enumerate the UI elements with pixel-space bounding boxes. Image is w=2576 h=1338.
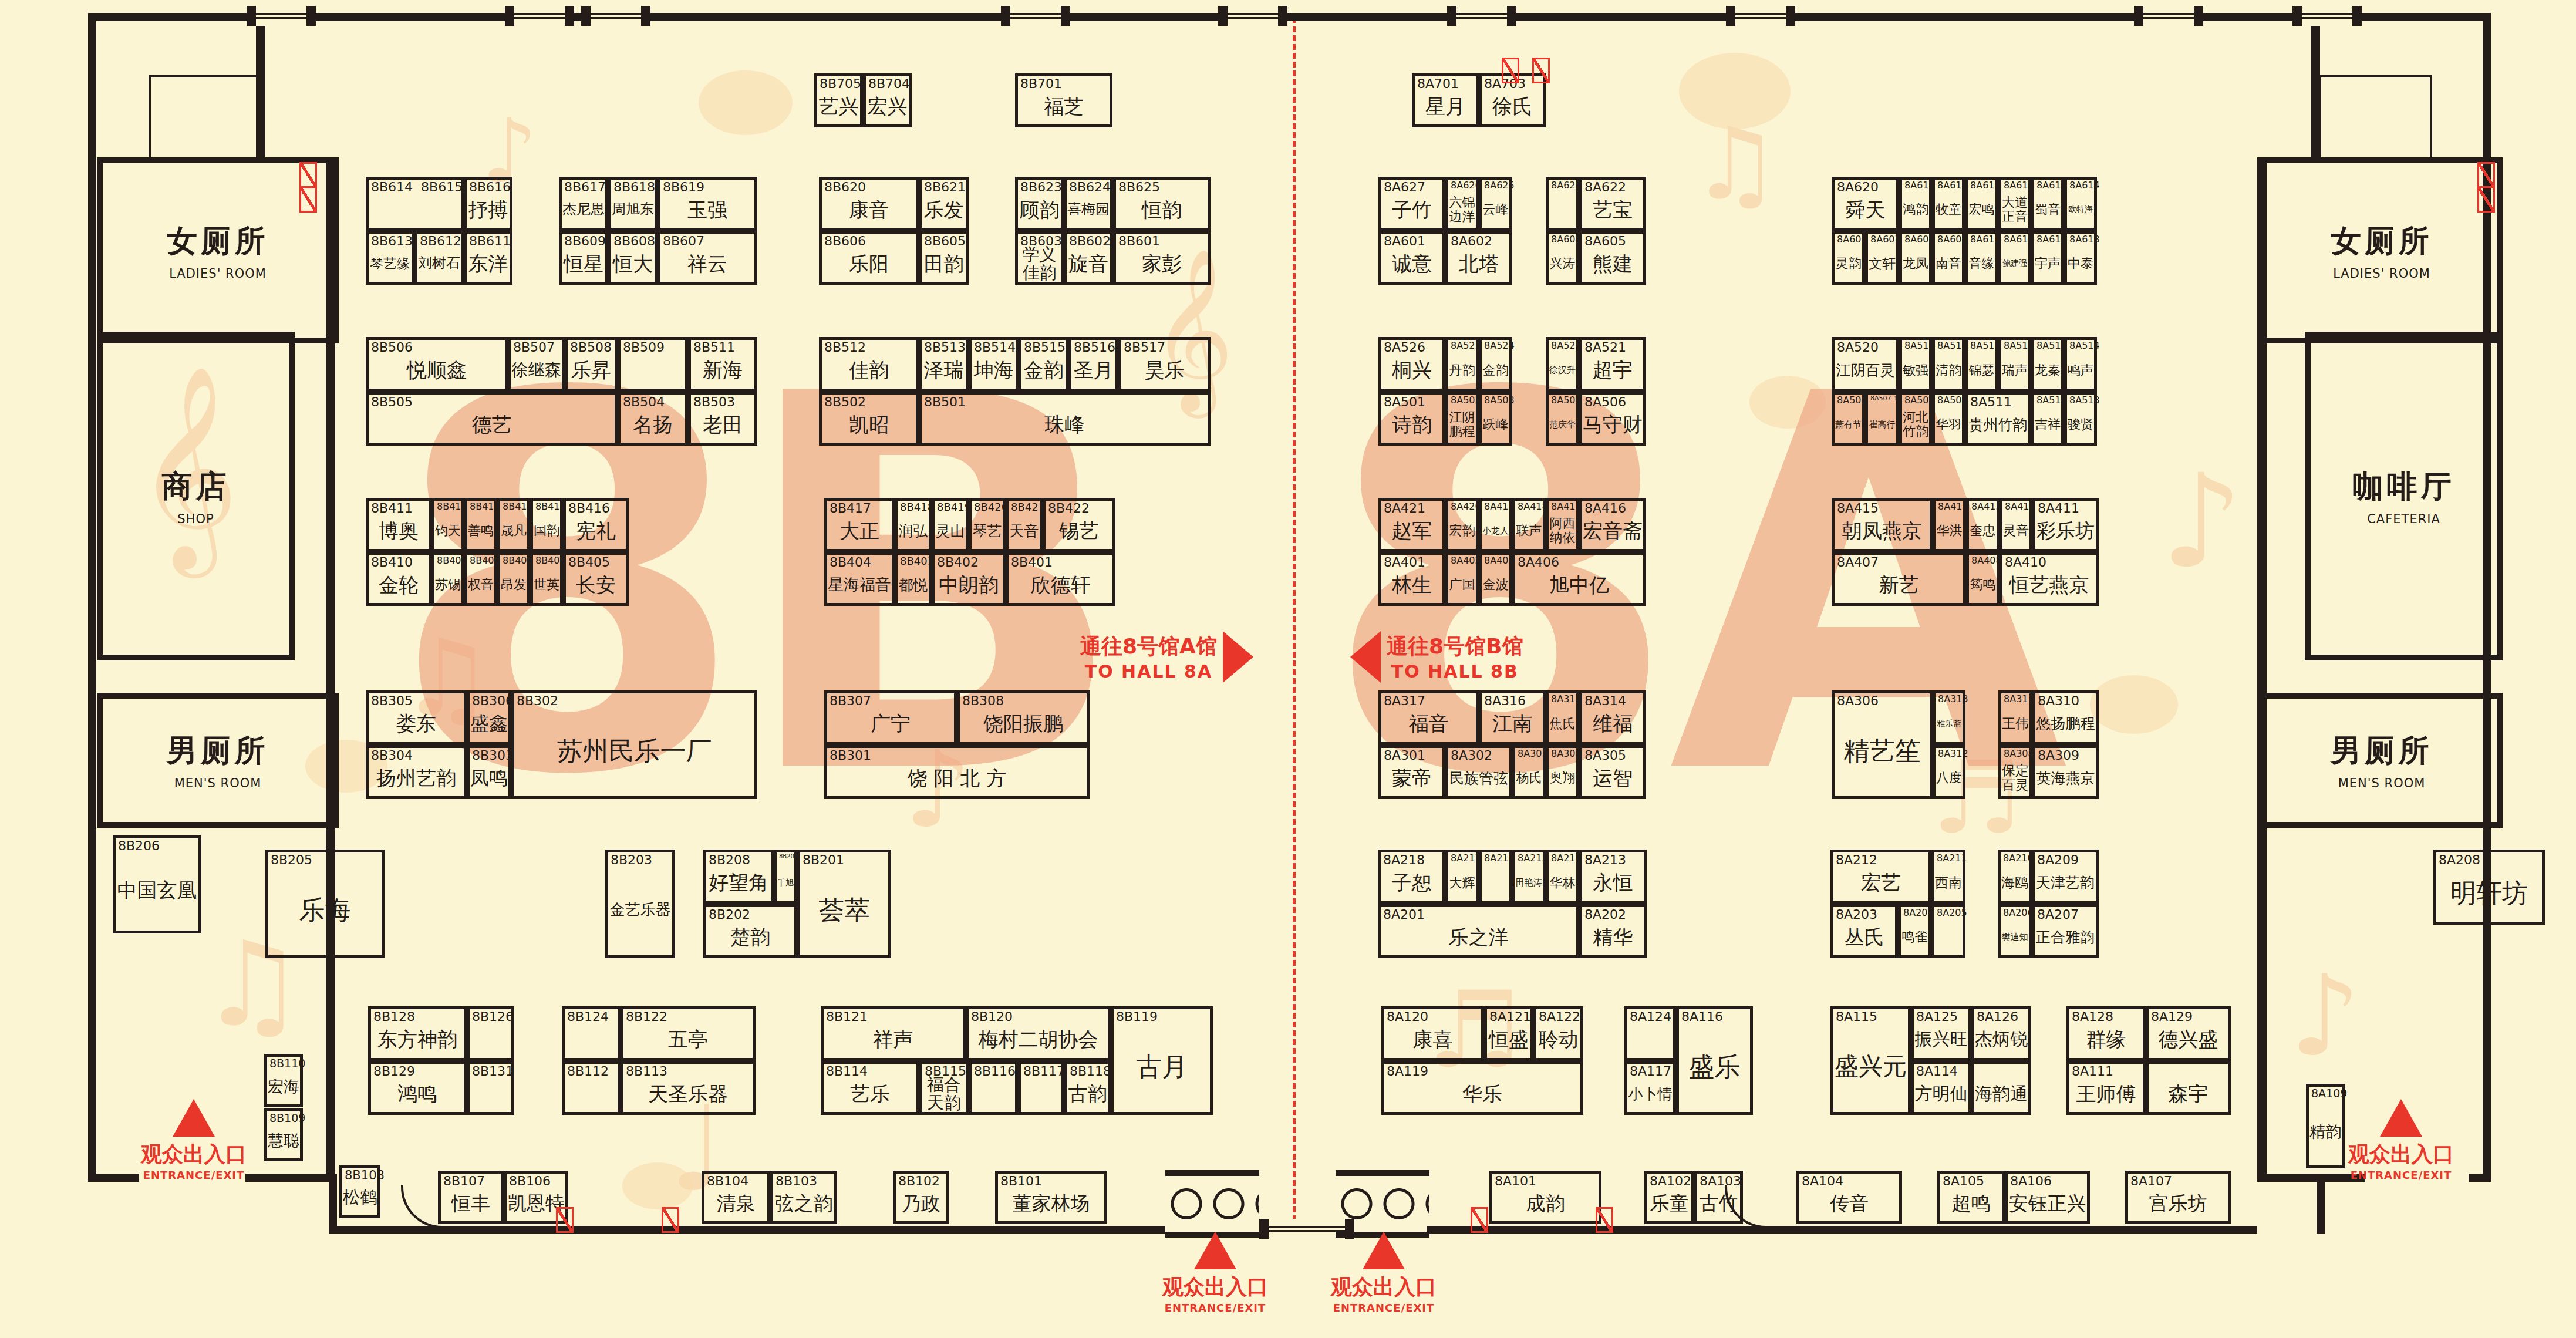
booth-8B305: 8B305娄东 — [366, 690, 467, 745]
booth-8B413: 8B413善鸣 — [464, 498, 497, 552]
booth-id: 8B603 — [1020, 234, 1062, 248]
booth-id: 8B507 — [513, 341, 555, 355]
booth-id: 8B409 — [437, 555, 467, 566]
booth-8B112: 8B112 — [562, 1061, 621, 1115]
booth-name: 苏州民乐一厂 — [557, 725, 712, 765]
entrance-label-cn: 观众出入口 — [1316, 1273, 1451, 1302]
room-label: 商店 — [162, 466, 230, 507]
booth-id: 8B625 — [1118, 180, 1160, 194]
booth-name: 蜀音 — [2035, 191, 2061, 217]
booth-id: 8A419 — [1484, 501, 1515, 512]
room-label: 男厕所 — [167, 730, 269, 771]
room-label-en: LADIES' ROOM — [2333, 267, 2430, 281]
booth-id: 8B113 — [626, 1064, 667, 1079]
booth-id: 8B509 — [623, 341, 665, 355]
booth-8B409: 8B409苏锡 — [431, 552, 464, 606]
booth-id: 8A408 — [1971, 555, 2002, 566]
booth-8A310: 8A310悠扬鹏程 — [2032, 690, 2099, 745]
booth-id: 8B102 — [898, 1174, 940, 1188]
booth-id: 8A117 — [1630, 1064, 1671, 1079]
booth-8A607: 8A607文轩 — [1865, 231, 1899, 285]
booth-id: 8B209 — [779, 853, 798, 860]
booth-8A516: 8A516瑞声 — [1998, 337, 2031, 392]
booth-id: 8A517 — [1970, 341, 2001, 351]
booth-8A522: 8A522徐汉升 — [1546, 337, 1579, 392]
booth-id: 8A202 — [1584, 908, 1626, 922]
booth-id: 8A206 — [2003, 908, 2034, 918]
wall-segment — [329, 1174, 337, 1234]
booth-id: 8B414 — [503, 501, 533, 512]
booth-id: 8A525 — [1451, 341, 1481, 351]
booth-name: 牧童 — [1936, 191, 1961, 217]
booth-id: 8A122 — [1539, 1010, 1580, 1024]
booth-8A520: 8A520江阴百灵 — [1832, 337, 1899, 392]
entrance-bottom-center-left: 观众出入口 ENTRANCE/EXIT — [1148, 1232, 1283, 1314]
booth-id: 8A115 — [1836, 1010, 1877, 1024]
booth-id: 8B301 — [830, 749, 871, 763]
fire-point-icon — [299, 162, 317, 188]
booth-name: 宏韵 — [1449, 512, 1475, 538]
room-label-en: SHOP — [177, 512, 214, 526]
booth-name: 善鸣 — [468, 512, 494, 538]
booth-name: 华乐 — [1462, 1071, 1502, 1105]
booth-id: 8A103 — [1700, 1174, 1741, 1188]
booth-8A106: 8A106安钰正兴 — [2005, 1171, 2090, 1224]
booth-8B417: 8B417大正 — [824, 498, 895, 552]
booth-id: 8B118 — [1070, 1064, 1111, 1079]
booth-id: 8B701 — [1020, 77, 1062, 91]
watermark-blob — [699, 70, 793, 135]
booth-id: 8B618 — [613, 180, 655, 194]
booth-id: 8A301 — [1384, 749, 1425, 763]
booth-8A613: 8A613中泰 — [2064, 231, 2097, 285]
booth-id: 8A120 — [1387, 1010, 1428, 1024]
booth-8A402: 8A402广国 — [1445, 552, 1479, 606]
booth-8A114: 8A114方明仙 — [1911, 1061, 1971, 1115]
booth-8A119: 8A119华乐 — [1381, 1061, 1583, 1115]
booth-id: 8B420 — [974, 501, 1008, 513]
booth-8A303: 8A303杨氏 — [1512, 745, 1546, 799]
booth-8A509: 8A509华羽 — [1932, 392, 1965, 446]
booth-id: 8A516 — [2004, 341, 2034, 351]
booth-id: 8A502 — [1451, 395, 1481, 406]
booth-8A526: 8A526桐兴 — [1378, 337, 1445, 392]
booth-id: 8A101 — [1495, 1174, 1536, 1188]
booth-8A617: 8A617宏鸣 — [1965, 177, 1998, 231]
booth-name: 荟萃 — [818, 884, 870, 924]
booth-8A619: 8A619鸿韵 — [1899, 177, 1932, 231]
booth-8B513: 8B513泽瑞 — [919, 337, 969, 392]
booth-id: 8A411 — [2038, 501, 2079, 515]
booth-8A121: 8A121恒盛 — [1484, 1006, 1533, 1061]
booth-id: 8B129 — [373, 1064, 415, 1079]
booth-8A202: 8A202精华 — [1579, 904, 1647, 958]
booth-海韵通: 海韵通 — [1971, 1061, 2031, 1115]
booth-8A314: 8A314维福 — [1579, 690, 1646, 745]
fire-point-icon — [2477, 162, 2495, 188]
booth-8B411: 8B411博奥 — [366, 498, 431, 552]
booth-8B420: 8B420琴艺 — [969, 498, 1006, 552]
booth-name: 海鸥 — [2001, 864, 2028, 890]
booth-8A701: 8A701星月 — [1412, 73, 1479, 127]
booth-id: 8B512 — [824, 341, 866, 355]
booth-8A218: 8A218子恕 — [1378, 850, 1445, 904]
booth-8B401: 8B401欣德轩 — [1006, 552, 1115, 606]
booth-8B102: 8B102乃政 — [893, 1171, 949, 1224]
booth-name: 兴涛 — [1550, 245, 1576, 271]
booth-8A611: 8A611鲍建强 — [1998, 231, 2031, 285]
booth-name: 都悦 — [899, 565, 928, 593]
booth-8A618: 8A618牧童 — [1932, 177, 1965, 231]
room-label-en: MEN'S ROOM — [2338, 776, 2426, 790]
booth-8A417: 8A417阿西纳依 — [1546, 498, 1579, 552]
booth-id: 8B416 — [568, 501, 610, 515]
vestibule-outline — [2319, 75, 2432, 162]
booth-name: 琴艺缘 — [370, 245, 410, 271]
booth-8A126: 8A126杰炳锐 — [1971, 1006, 2031, 1061]
booth-id: 8A503 — [1484, 395, 1515, 406]
booth-8A128: 8A128群缘 — [2066, 1006, 2146, 1061]
vestibule-outline — [149, 75, 262, 162]
booth-name: 盛兴元 — [1835, 1042, 1907, 1079]
booth-8A508: 8A508河北竹韵 — [1899, 392, 1932, 446]
booth-8A406: 8A406旭中亿 — [1512, 552, 1646, 606]
booth-8B503: 8B503老田 — [688, 392, 757, 446]
booth-name: 权音 — [468, 566, 494, 592]
door-opening-icon — [247, 6, 316, 26]
booth-id: 8B504 — [623, 395, 665, 409]
booth-8B605: 8B605田韵 — [919, 231, 969, 285]
booth-8B126: 8B126 — [467, 1006, 514, 1061]
sign-to-hall-8a: 通往8号馆A馆 TO HALL 8A — [1080, 631, 1253, 683]
booth-id: 8A309 — [2038, 749, 2079, 763]
booth-8A208: 8A208明轩坊 — [2433, 850, 2545, 925]
booth-8B613: 8B613琴艺缘 — [366, 231, 414, 285]
booth-id: 8A617 — [1970, 180, 2001, 191]
door-opening-icon — [1218, 6, 1287, 26]
booth-8B408: 8B408权音 — [464, 552, 497, 606]
booth-name: 西南 — [1935, 864, 1962, 890]
booth-id: 8A306 — [1837, 694, 1879, 708]
booth-id: 8A119 — [1387, 1064, 1428, 1079]
fire-point-icon — [556, 1207, 574, 1233]
booth-8B304: 8B304扬州艺韵 — [366, 745, 467, 799]
booth-8A103: 8A103古竹 — [1694, 1171, 1743, 1224]
booth-id: 8A102 — [1650, 1174, 1691, 1188]
booth-id: 8B516 — [1074, 341, 1115, 355]
booth-name: 乐之洋 — [1449, 915, 1509, 948]
booth-name: 大辉 — [1449, 864, 1475, 890]
booth-id: 8A114 — [1916, 1064, 1958, 1079]
booth-name: 奥翔 — [1550, 759, 1576, 785]
booth-8B612: 8B612刘树石 — [414, 231, 464, 285]
booth-8B404: 8B404星海福音 — [824, 552, 895, 606]
booth-id: 8A214 — [1551, 853, 1582, 864]
booth-id: 8B408 — [470, 555, 500, 566]
booth-8A503: 8A503跃峰 — [1479, 392, 1512, 446]
booth-id: 8A125 — [1916, 1010, 1958, 1024]
booth-id: 8A126 — [1977, 1010, 2018, 1024]
booth-id: 8A605 — [1584, 234, 1626, 248]
watermark-blob — [2090, 675, 2178, 734]
booth-name: 云峰 — [1483, 191, 1509, 217]
booth-name: 灵音 — [2003, 512, 2029, 538]
booth-name: 广国 — [1449, 566, 1475, 592]
booth-id: 8A609 — [1937, 234, 1968, 245]
booth-8A125: 8A125振兴旺 — [1911, 1006, 1971, 1061]
fire-point-icon — [1532, 58, 1550, 83]
booth-id: 8A217 — [1451, 853, 1481, 864]
entrance-bottom-center-right: 观众出入口 ENTRANCE/EXIT — [1316, 1232, 1451, 1314]
booth-8B208: 8B208好望角 — [703, 850, 774, 904]
booth-id: 8A421 — [1384, 501, 1425, 515]
booth-id: 8A601 — [1384, 234, 1425, 248]
booth-id: 8A107 — [2130, 1174, 2172, 1188]
booth-name: 乐海 — [299, 884, 351, 924]
booth-8A521: 8A521超宇 — [1579, 337, 1646, 392]
booth-id: 8B624 — [1069, 180, 1111, 194]
booth-id: 8B208 — [709, 853, 750, 867]
booth-id: 8A514 — [2069, 341, 2100, 351]
booth-8B113: 8B113天圣乐器 — [621, 1061, 756, 1115]
booth-name: 丹韵 — [1449, 352, 1475, 378]
booth-8A317: 8A317福音 — [1378, 690, 1479, 745]
booth-8B608: 8B608恒大 — [608, 231, 658, 285]
booth-8A204: 8A204鸣雀 — [1898, 904, 1931, 958]
booth-name: 珠峰 — [1045, 402, 1085, 436]
booth-8B618: 8B618周旭东 — [608, 177, 658, 231]
booth-8B201: 8B201荟萃 — [797, 850, 891, 958]
booth-name: 明轩坊 — [2450, 867, 2528, 907]
arrow-left-icon — [1350, 631, 1381, 683]
booth-id: 8B131 — [472, 1064, 514, 1079]
booth-8B611: 8B611东洋 — [464, 231, 512, 285]
booth-8B122: 8B122五亭 — [621, 1006, 756, 1061]
booth-id: 8A311 — [2004, 694, 2034, 705]
booth-id: 8A213 — [1584, 853, 1626, 867]
booth-8A626: 8A626六锦边洋 — [1445, 177, 1479, 231]
booth-id: 8B124 — [567, 1010, 609, 1024]
room-mens-left: 男厕所 MEN'S ROOM — [97, 693, 339, 828]
booth-id: 8A701 — [1417, 77, 1459, 91]
booth-8A512: 8A512吉祥 — [2031, 392, 2064, 446]
booth-id: 8A501 — [1384, 395, 1425, 409]
booth-id: 8B306 — [472, 694, 514, 708]
booth-id: 8A515 — [2036, 341, 2067, 351]
fire-point-icon — [1502, 58, 1519, 83]
booth-8A111: 8A111王师傅 — [2066, 1061, 2146, 1115]
booth-8A507-1: 8A507-1崔高行 — [1865, 392, 1899, 446]
booth-8B124: 8B124 — [562, 1006, 621, 1061]
door-opening-icon — [581, 6, 650, 26]
booth-name: 吉祥 — [2035, 406, 2061, 432]
booth-8B419: 8B419灵山 — [932, 498, 969, 552]
booth-id: 8A407 — [1837, 555, 1879, 569]
booth-id: 8A210 — [2003, 853, 2034, 864]
booth-id: 8A412 — [2005, 501, 2035, 512]
booth-8B517: 8B517昊乐 — [1118, 337, 1211, 392]
booth-id: 8A505 — [1551, 395, 1582, 406]
booth-id: 8A406 — [1518, 555, 1559, 569]
booth-8B418: 8B418润弘 — [895, 498, 932, 552]
booth-8B504: 8B504名扬 — [618, 392, 688, 446]
booth-name: 宏海 — [268, 1066, 299, 1095]
booth-8A513: 8A513骏贤 — [2064, 392, 2097, 446]
booth-8B118: 8B118古韵 — [1064, 1061, 1111, 1115]
room-label: 男厕所 — [2331, 730, 2433, 771]
booth-8B306: 8B306盛鑫 — [467, 690, 511, 745]
booth-id: 8A415 — [1837, 501, 1879, 515]
booth-8B704: 8B704宏兴 — [863, 73, 912, 127]
booth-id: 8B704 — [868, 77, 910, 91]
booth-id: 8A203 — [1836, 908, 1877, 922]
booth-8B103: 8B103弦之韵 — [770, 1171, 837, 1224]
booth-id: 8A417 — [1551, 501, 1582, 512]
booth-id: 8A611 — [2004, 234, 2034, 245]
door-opening-icon — [505, 6, 574, 26]
booth-8B301: 8B301饶 阳 北 方 — [824, 745, 1090, 799]
watermark-blob — [622, 1162, 693, 1209]
booth-name: 跃峰 — [1483, 406, 1509, 432]
booth-8B116: 8B116 — [969, 1061, 1018, 1115]
booth-8A217: 8A217大辉 — [1445, 850, 1479, 904]
booth-8B206: 8B206中国玄凰 — [113, 835, 201, 933]
booth-name: 小龙人 — [1482, 514, 1509, 535]
booth-id: 8B614 8B615 — [371, 180, 463, 194]
booth-森宇: 森宇 — [2146, 1061, 2231, 1115]
booth-8A623: 8A623 — [1546, 177, 1579, 231]
booth-id: 8B418 — [900, 501, 934, 513]
booth-name: 中国玄凰 — [117, 868, 197, 901]
booth-name: 雅乐斋 — [1937, 707, 1961, 728]
booth-name: 昂发 — [501, 566, 527, 592]
sign-to-hall-8a-en: TO HALL 8A — [1080, 661, 1217, 682]
booth-name: 五亭 — [668, 1017, 708, 1050]
booth-id: 8A302 — [1451, 749, 1492, 763]
booth-name: 联声 — [1516, 512, 1542, 538]
booth-id: 8B619 — [663, 180, 704, 194]
booth-id: 8B621 — [924, 180, 966, 194]
booth-8A420: 8A420宏韵 — [1445, 498, 1479, 552]
booth-id: 8A310 — [2038, 694, 2079, 708]
booth-8A105: 8A105超鸣 — [1937, 1171, 2005, 1224]
booth-id: 8B115 — [925, 1064, 966, 1079]
booth-name: 世英 — [534, 566, 559, 592]
booth-id: 8A315 — [1551, 694, 1582, 705]
booth-8B412: 8B412钧天 — [431, 498, 464, 552]
booth-id: 8B406 — [535, 555, 566, 566]
booth-8A311: 8A311王伟 — [1998, 690, 2032, 745]
booth-id: 8B605 — [924, 234, 966, 248]
booth-8B104: 8B104清泉 — [702, 1171, 770, 1224]
booth-id: 8B116 — [974, 1064, 1016, 1079]
booth-id: 8A208 — [2439, 853, 2480, 867]
booth-name: 华林 — [1550, 864, 1576, 890]
booth-8A608: 8A608龙凤 — [1899, 231, 1932, 285]
booth-8B502: 8B502凯昭 — [819, 392, 919, 446]
booth-8A313: 8A313雅乐斋 — [1933, 690, 1965, 745]
booth-id: 8B422 — [1048, 501, 1090, 515]
booth-id: 8A204 — [1903, 908, 1934, 918]
booth-8B415: 8B415国韵 — [530, 498, 563, 552]
booth-8B602: 8B602旋音 — [1064, 231, 1113, 285]
booth-8A122: 8A122聆动 — [1533, 1006, 1583, 1061]
booth-name: 灵韵 — [1836, 245, 1862, 271]
booth-id: 8B401 — [1011, 555, 1053, 569]
booth-id: 8B108 — [345, 1169, 385, 1182]
booth-id: 8B417 — [830, 501, 871, 515]
booth-id: 8B411 — [371, 501, 413, 515]
arrow-right-icon — [1223, 631, 1253, 683]
booth-8A627: 8A627子竹 — [1378, 177, 1445, 231]
booth-8B515: 8B515金韵 — [1019, 337, 1068, 392]
booth-name: 德艺 — [472, 402, 512, 436]
booth-name: 悦顺鑫 — [407, 348, 467, 381]
booth-id: 8A509 — [1937, 395, 1968, 406]
booth-name: 鲍建强 — [2002, 247, 2027, 268]
booth-id: 8A622 — [1584, 180, 1626, 194]
sign-to-hall-8b-cn: 通往8号馆B馆 — [1387, 632, 1523, 661]
room-label: 女厕所 — [167, 221, 269, 262]
booth-id: 8B307 — [830, 694, 871, 708]
booth-id: 8A207 — [2037, 908, 2079, 922]
booth-id: 8A610 — [1970, 234, 2001, 245]
booth-name: 新艺 — [1879, 562, 1919, 596]
booth-8A609: 8A609南音 — [1932, 231, 1965, 285]
booth-id: 8B114 — [826, 1064, 868, 1079]
booth-8B508: 8B508乐昇 — [565, 337, 618, 392]
booth-name: 天音 — [1010, 511, 1039, 539]
booth-id: 8B517 — [1124, 341, 1165, 355]
booth-name: 崔高行 — [1869, 408, 1896, 429]
booth-name: 盛乐 — [1689, 1041, 1741, 1081]
booth-name: 王伟 — [2002, 705, 2029, 731]
booth-id: 8B407 — [503, 555, 533, 566]
booth-8A502: 8A502江阴鹏程 — [1445, 392, 1479, 446]
booth-id: 8A121 — [1489, 1010, 1531, 1024]
booth-id: 8B514 — [974, 341, 1016, 355]
booth-id: 8B403 — [900, 555, 934, 567]
booth-name: 音缘 — [1969, 245, 1995, 271]
door-opening-icon — [1001, 6, 1070, 26]
booth-8B616: 8B616抒搏 — [464, 177, 512, 231]
room-label: 咖啡厅 — [2353, 466, 2455, 507]
booth-8A419: 8A419小龙人 — [1479, 498, 1512, 552]
booth-8B307: 8B307广宁 — [824, 690, 957, 745]
booth-id: 8B501 — [924, 395, 966, 409]
booth-id: 8B404 — [830, 555, 871, 569]
booth-name: 精艺笙 — [1843, 725, 1921, 765]
booth-id: 8A511 — [1970, 395, 2012, 409]
sign-to-hall-8a-cn: 通往8号馆A馆 — [1080, 632, 1217, 661]
booth-8A129: 8A129德兴盛 — [2146, 1006, 2231, 1061]
booth-id: 8A211 — [1937, 853, 1967, 864]
booth-id: 8A205 — [1937, 908, 1967, 918]
booth-8A410: 8A410恒艺燕京 — [2000, 552, 2099, 606]
booth-8A211: 8A211西南 — [1931, 850, 1965, 904]
booth-8A605: 8A605熊建 — [1579, 231, 1646, 285]
entrance-label-cn: 观众出入口 — [1148, 1273, 1283, 1302]
booth-name: 焦氏 — [1550, 705, 1576, 731]
booth-8B617: 8B617杰尼思 — [559, 177, 608, 231]
booth-id: 8A606 — [1837, 234, 1867, 245]
booth-id: 8B608 — [613, 234, 655, 248]
watermark-blob — [1679, 53, 1791, 129]
booth-name: 欧特海 — [2068, 193, 2093, 214]
booth-id: 8A518 — [1937, 341, 1968, 351]
booth-id: 8B103 — [776, 1174, 817, 1188]
fire-point-icon — [662, 1207, 679, 1233]
